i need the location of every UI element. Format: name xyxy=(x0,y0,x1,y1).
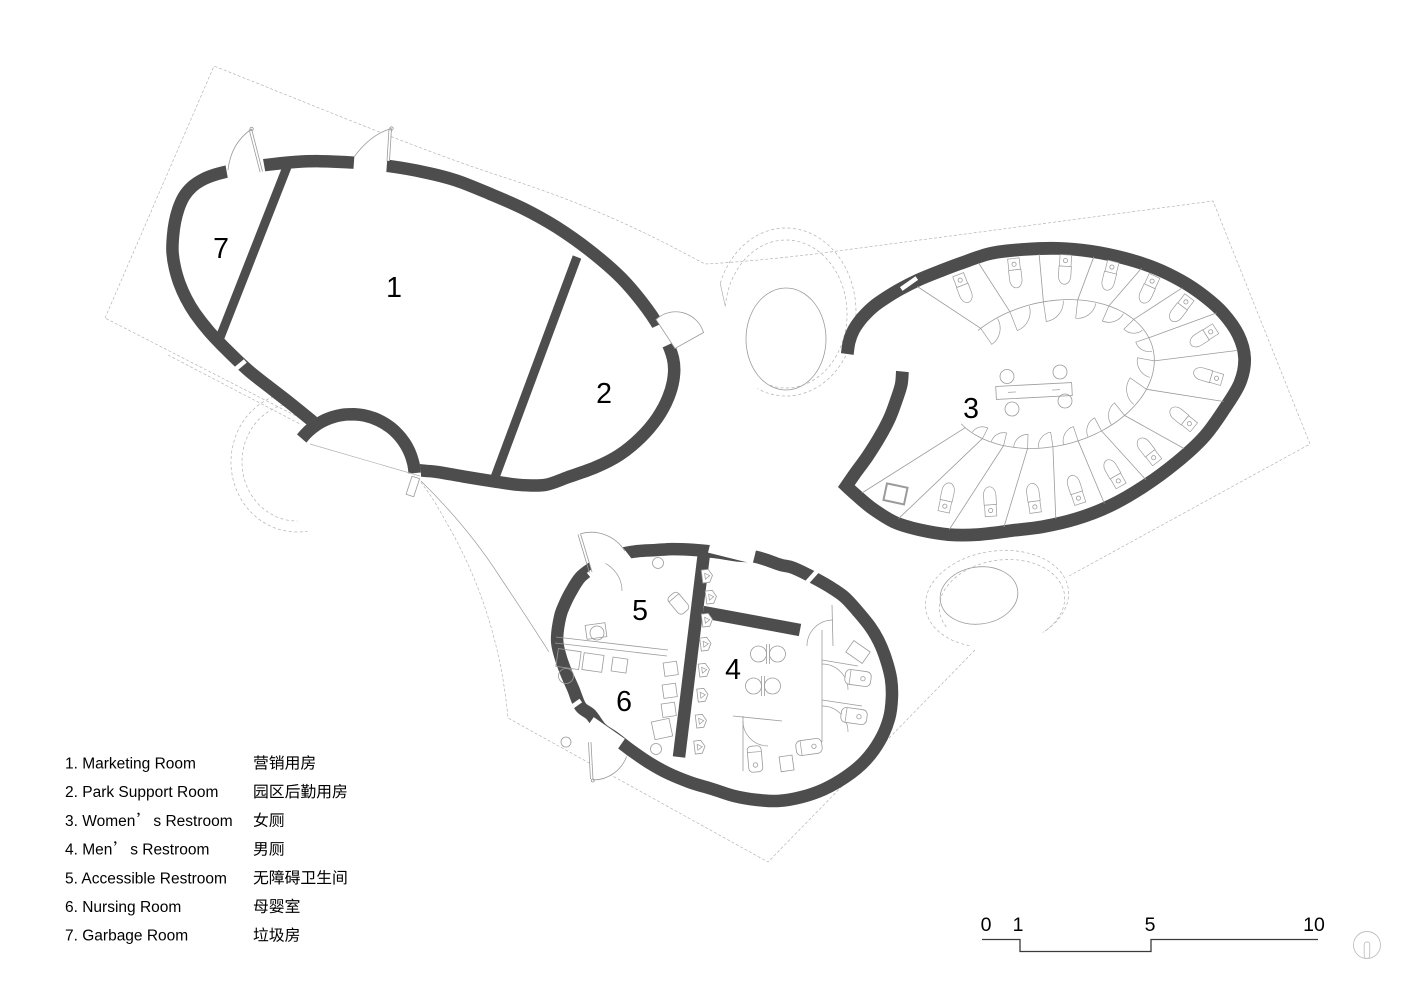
svg-text:4: 4 xyxy=(725,654,741,686)
svg-text:s Restroom: s Restroom xyxy=(153,813,232,830)
svg-text:7. Garbage Room: 7. Garbage Room xyxy=(65,928,188,945)
svg-text:5: 5 xyxy=(1145,914,1156,936)
svg-text:2. Park Support Room: 2. Park Support Room xyxy=(65,784,218,801)
svg-text:0: 0 xyxy=(981,914,992,936)
svg-text:6: 6 xyxy=(616,686,632,718)
svg-text:4. Men: 4. Men xyxy=(65,842,112,859)
svg-text:5: 5 xyxy=(632,595,648,627)
svg-text:1. Marketing Room: 1. Marketing Room xyxy=(65,756,196,773)
svg-text:2: 2 xyxy=(596,378,612,410)
svg-text:3. Women: 3. Women xyxy=(65,813,135,830)
svg-text:10: 10 xyxy=(1303,914,1325,936)
svg-text:3: 3 xyxy=(963,393,979,425)
svg-text:5. Accessible Restroom: 5. Accessible Restroom xyxy=(65,870,227,887)
svg-text:s Restroom: s Restroom xyxy=(130,842,209,859)
svg-text:1: 1 xyxy=(1013,914,1024,936)
svg-text:6. Nursing Room: 6. Nursing Room xyxy=(65,899,181,916)
svg-text:7: 7 xyxy=(213,233,229,265)
svg-text:1: 1 xyxy=(386,272,402,304)
